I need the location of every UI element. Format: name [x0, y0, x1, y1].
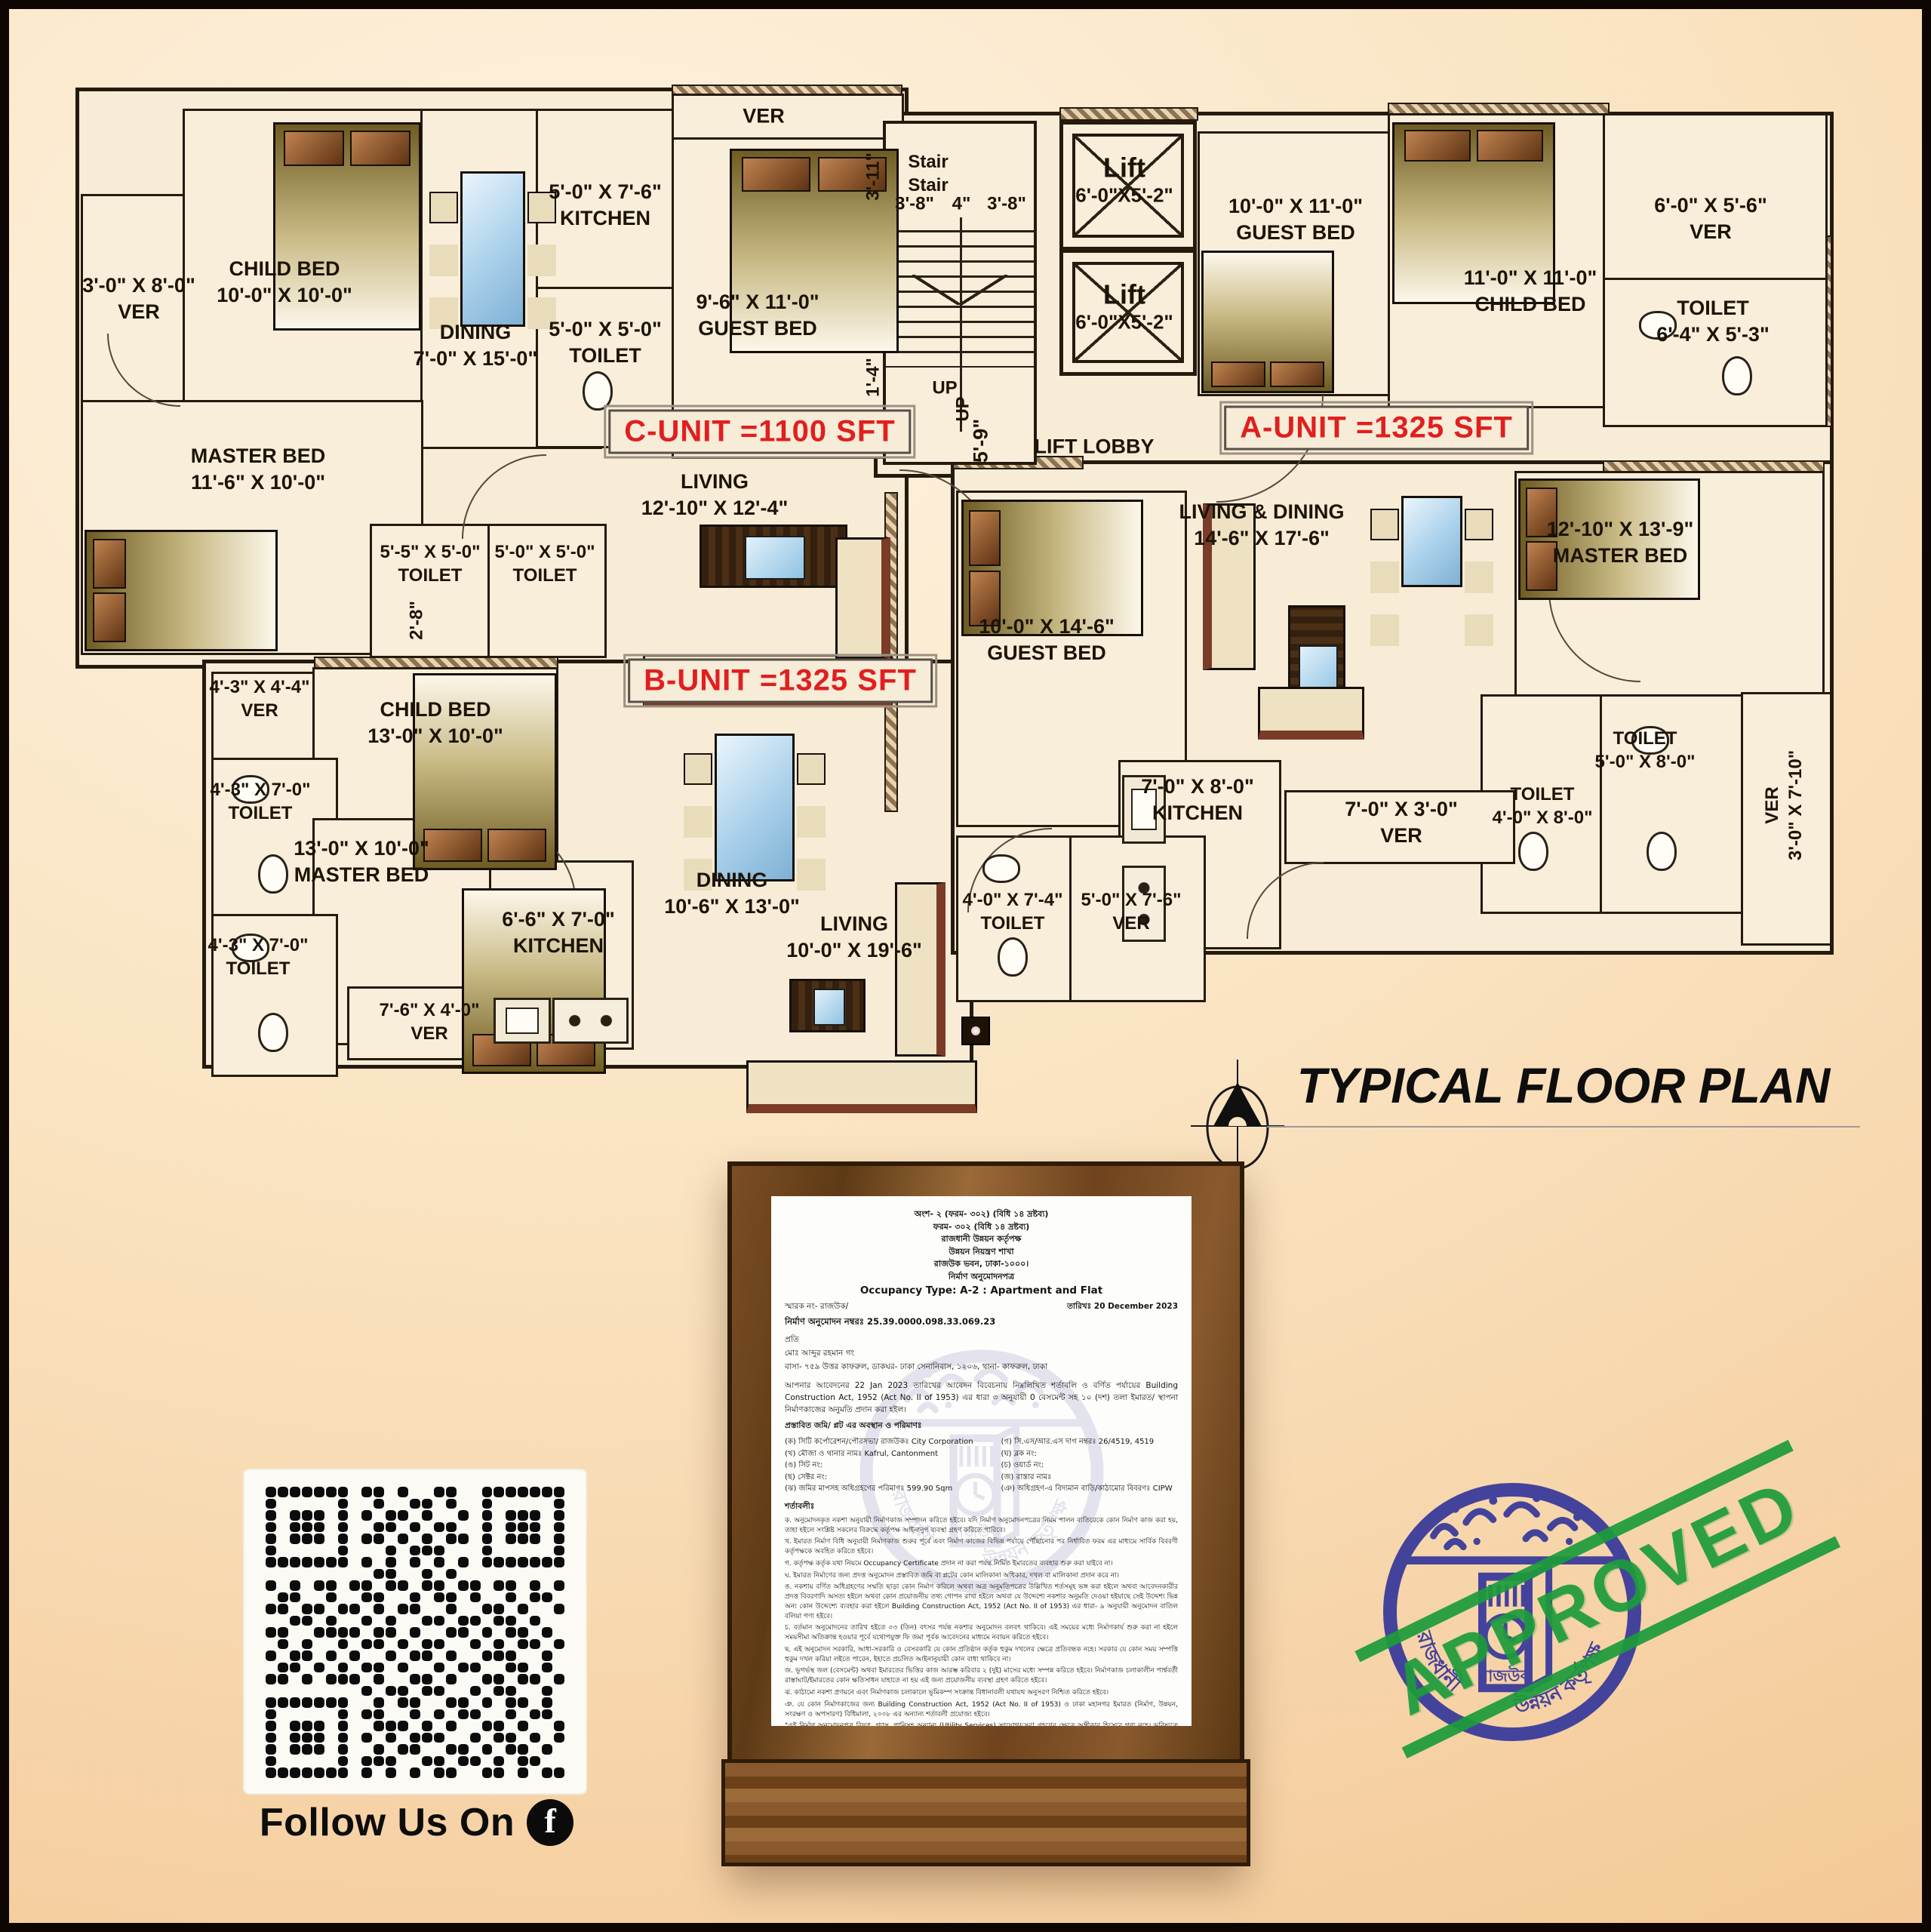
- qr-module: [302, 1674, 312, 1684]
- qr-module: [278, 1767, 288, 1778]
- qr-module: [326, 1756, 337, 1767]
- qr-module: [422, 1663, 432, 1673]
- qr-module: [361, 1580, 372, 1591]
- qr-module: [422, 1546, 432, 1556]
- cert-header-line: রাজউক ভবন, ঢাকা-১০০০।: [785, 1258, 1178, 1271]
- qr-module: [458, 1534, 469, 1544]
- qr-module: [554, 1592, 564, 1603]
- qr-module: [326, 1522, 337, 1533]
- qr-module: [326, 1546, 337, 1556]
- qr-module: [482, 1639, 493, 1650]
- qr-module: [518, 1639, 528, 1650]
- qr-module: [386, 1546, 396, 1556]
- qr-module: [349, 1709, 360, 1720]
- cert-addressee: বাসা- ৭৫৯ উত্তর কাফরুল, ডাকঘর- ঢাকা সেনা…: [785, 1361, 1178, 1374]
- qr-module: [374, 1487, 384, 1497]
- qr-module: [518, 1674, 528, 1684]
- qr-module: [446, 1580, 457, 1591]
- qr-module: [494, 1592, 504, 1603]
- qr-module: [290, 1721, 300, 1731]
- qr-module: [374, 1686, 384, 1697]
- qr-module: [422, 1686, 432, 1697]
- room-label: CHILD BED10'-0" X 10'-0": [217, 256, 352, 309]
- qr-module: [530, 1639, 540, 1650]
- room-label: 4'-3" X 4'-4"VER: [210, 675, 310, 722]
- qr-module: [458, 1651, 469, 1661]
- qr-module: [314, 1522, 324, 1533]
- qr-module: [470, 1639, 481, 1650]
- cert-header-line: উন্নয়ন নিয়ন্ত্রণ শাখা: [785, 1246, 1178, 1259]
- qr-module: [338, 1674, 349, 1684]
- qr-module: [290, 1616, 300, 1626]
- qr-module: [458, 1733, 469, 1743]
- qr-module: [386, 1534, 396, 1544]
- qr-module: [302, 1522, 312, 1533]
- qr-module: [494, 1604, 504, 1614]
- qr-module: [530, 1767, 540, 1778]
- qr-module: [374, 1663, 384, 1673]
- qr-module: [410, 1639, 420, 1650]
- dim-label: 3'-8": [895, 192, 934, 215]
- qr-module: [482, 1663, 493, 1673]
- toilet-wc-icon: [258, 1013, 288, 1052]
- qr-module: [554, 1709, 564, 1720]
- qr-module: [494, 1767, 504, 1778]
- room-label: 9'-6" X 11'-0"GUEST BED: [696, 289, 819, 342]
- qr-module: [422, 1709, 432, 1720]
- qr-module: [278, 1580, 288, 1591]
- qr-module: [290, 1627, 300, 1638]
- qr-module: [278, 1756, 288, 1767]
- qr-module: [302, 1569, 312, 1580]
- qr-module: [434, 1709, 444, 1720]
- qr-module: [458, 1721, 469, 1731]
- stair-label: StairStair: [908, 150, 948, 197]
- qr-module: [482, 1580, 493, 1591]
- cert-header-line: রাজধানী উন্নয়ন কর্তৃপক্ষ: [785, 1233, 1178, 1246]
- qr-module: [518, 1534, 528, 1544]
- qr-module: [470, 1616, 481, 1626]
- qr-module: [361, 1686, 372, 1697]
- qr-module: [494, 1557, 504, 1567]
- qr-module: [398, 1569, 408, 1580]
- qr-module: [338, 1651, 349, 1661]
- qr-module: [446, 1651, 457, 1661]
- cert-plot-grid: (ক) সিটি কর্পোরেশন/পৌরসভা/ রাজউকঃ City C…: [785, 1436, 1178, 1495]
- qr-module: [458, 1639, 469, 1650]
- qr-module: [302, 1767, 312, 1778]
- qr-module: [278, 1627, 288, 1638]
- qr-module: [542, 1534, 552, 1544]
- qr-module: [554, 1604, 564, 1614]
- qr-module: [349, 1756, 360, 1767]
- qr-module: [446, 1592, 457, 1603]
- qr-module: [314, 1557, 324, 1567]
- qr-module: [446, 1534, 457, 1544]
- qr-module: [290, 1557, 300, 1567]
- qr-module: [290, 1756, 300, 1767]
- qr-module: [338, 1616, 349, 1626]
- plot-cell: (চ) ওয়ার্ড নং:: [1001, 1460, 1178, 1472]
- qr-module: [482, 1651, 493, 1661]
- qr-module: [518, 1557, 528, 1567]
- qr-module: [458, 1709, 469, 1720]
- room-label: 4'-0" X 7'-4"TOILET: [963, 888, 1063, 935]
- qr-module: [398, 1639, 408, 1650]
- qr-module: [506, 1616, 516, 1626]
- qr-module: [326, 1651, 337, 1661]
- room-label: TOILET4'-0" X 8'-0": [1493, 783, 1593, 829]
- qr-module: [494, 1721, 504, 1731]
- qr-module: [554, 1663, 564, 1673]
- qr-module: [266, 1686, 276, 1697]
- qr-module: [434, 1510, 444, 1521]
- cert-approval-number: নির্মাণ অনুমোদন নম্বরঃ 25.39.0000.098.33…: [785, 1315, 1178, 1330]
- qr-module: [374, 1733, 384, 1743]
- qr-module: [374, 1709, 384, 1720]
- qr-module: [302, 1733, 312, 1743]
- follow-us-label: Follow Us On: [260, 1800, 515, 1845]
- room-label: MASTER BED11'-6" X 10'-0": [191, 443, 326, 496]
- qr-module: [434, 1721, 444, 1731]
- room-label: 7'-0" X 8'-0"KITCHEN: [1141, 774, 1254, 826]
- qr-module: [482, 1627, 493, 1638]
- floor-plan: 3'-0" X 8'-0"VER CHILD BED10'-0" X 10'-0…: [9, 9, 1931, 1156]
- qr-module: [302, 1604, 312, 1614]
- cert-condition: ঙ. নকশায় বর্ণিত অধিগ্রহণের সম্মতি ছাড়া…: [785, 1583, 1178, 1621]
- qr-module: [446, 1744, 457, 1755]
- qr-module: [386, 1522, 396, 1533]
- qr-module: [530, 1697, 540, 1708]
- unit-label-a: A-UNIT =1325 SFT: [1224, 406, 1529, 451]
- dim-label: 2'-8": [404, 601, 428, 640]
- qr-module: [506, 1592, 516, 1603]
- qr-module: [278, 1569, 288, 1580]
- qr-module: [518, 1569, 528, 1580]
- cert-conditions-heading: শর্তাবলীঃ: [785, 1501, 1178, 1514]
- qr-module: [266, 1522, 276, 1533]
- qr-module: [314, 1651, 324, 1661]
- qr-module: [458, 1767, 469, 1778]
- qr-module: [374, 1697, 384, 1708]
- qr-module: [542, 1733, 552, 1743]
- qr-module: [374, 1627, 384, 1638]
- bed-icon: [85, 530, 278, 651]
- qr-module: [386, 1510, 396, 1521]
- qr-module: [338, 1487, 349, 1497]
- qr-module: [302, 1592, 312, 1603]
- qr-module: [398, 1721, 408, 1731]
- qr-module: [266, 1709, 276, 1720]
- cert-header-line: ফরম- ৩০২ (বিধি ১৪ দ্রষ্টব্য): [785, 1221, 1178, 1234]
- qr-module: [506, 1721, 516, 1731]
- qr-module: [554, 1756, 564, 1767]
- qr-module: [314, 1604, 324, 1614]
- qr-module: [302, 1510, 312, 1521]
- qr-module: [374, 1651, 384, 1661]
- qr-module: [338, 1534, 349, 1544]
- qr-module: [542, 1546, 552, 1556]
- qr-module: [361, 1744, 372, 1755]
- plot-cell: (জ) রাস্তার নামঃ: [1001, 1472, 1178, 1484]
- qr-module: [494, 1686, 504, 1697]
- sofa-icon: [895, 882, 946, 1057]
- qr-module: [434, 1651, 444, 1661]
- qr-module: [422, 1510, 432, 1521]
- qr-module: [398, 1546, 408, 1556]
- qr-module: [422, 1697, 432, 1708]
- room-label: LIVING & DINING14'-6" X 17'-6": [1179, 499, 1344, 552]
- qr-module: [374, 1592, 384, 1603]
- qr-module: [266, 1639, 276, 1650]
- room-label: LIVING10'-0" X 19'-6": [786, 911, 922, 964]
- qr-module: [314, 1674, 324, 1684]
- qr-module: [361, 1534, 372, 1544]
- qr-module: [338, 1767, 349, 1778]
- qr-module: [349, 1767, 360, 1778]
- qr-module: [326, 1534, 337, 1544]
- qr-module: [458, 1499, 469, 1509]
- qr-module: [314, 1487, 324, 1497]
- qr-module: [361, 1639, 372, 1650]
- qr-module: [542, 1709, 552, 1720]
- dim-label: 3'-11": [861, 152, 884, 201]
- qr-module: [374, 1674, 384, 1684]
- qr-module: [530, 1721, 540, 1731]
- qr-module: [494, 1733, 504, 1743]
- qr-module: [410, 1546, 420, 1556]
- qr-module: [302, 1580, 312, 1591]
- qr-module: [446, 1569, 457, 1580]
- qr-module: [446, 1616, 457, 1626]
- qr-module: [482, 1756, 493, 1767]
- qr-module: [374, 1557, 384, 1567]
- toilet-wc-icon: [998, 937, 1028, 977]
- qr-module: [542, 1592, 552, 1603]
- qr-module: [542, 1627, 552, 1638]
- qr-module: [542, 1721, 552, 1731]
- room-label: 5'-0" X 7'-6"VER: [1081, 888, 1182, 935]
- qr-module: [398, 1697, 408, 1708]
- qr-module: [314, 1510, 324, 1521]
- qr-module: [338, 1499, 349, 1509]
- qr-module: [530, 1546, 540, 1556]
- qr-module: [398, 1744, 408, 1755]
- qr-module: [470, 1663, 481, 1673]
- dining-table-icon: [460, 171, 525, 327]
- qr-module: [290, 1569, 300, 1580]
- qr-module: [290, 1709, 300, 1720]
- room-label: 4'-3" X 7'-0"TOILET: [211, 778, 311, 825]
- qr-module: [290, 1663, 300, 1673]
- qr-module: [374, 1499, 384, 1509]
- bed-icon: [1201, 251, 1334, 393]
- qr-module: [518, 1627, 528, 1638]
- qr-module: [506, 1522, 516, 1533]
- qr-module: [338, 1546, 349, 1556]
- qr-module: [506, 1686, 516, 1697]
- qr-module: [554, 1580, 564, 1591]
- qr-code: [266, 1487, 564, 1778]
- qr-module: [326, 1616, 337, 1626]
- qr-module: [518, 1663, 528, 1673]
- qr-module: [494, 1663, 504, 1673]
- qr-module: [494, 1522, 504, 1533]
- qr-module: [506, 1499, 516, 1509]
- cert-memo-no: স্মারক নং- রাজউক/: [785, 1301, 848, 1314]
- cert-condition: ছ. এই অনুমোদন সরকারি, আধা-সরকারি ও বেসরক…: [785, 1645, 1178, 1665]
- qr-module: [506, 1767, 516, 1778]
- qr-module: [386, 1663, 396, 1673]
- qr-module: [410, 1744, 420, 1755]
- qr-module: [470, 1510, 481, 1521]
- qr-module: [494, 1697, 504, 1708]
- qr-module: [398, 1510, 408, 1521]
- qr-module: [278, 1674, 288, 1684]
- qr-module: [266, 1592, 276, 1603]
- qr-module: [422, 1534, 432, 1544]
- qr-module: [410, 1651, 420, 1661]
- qr-module: [494, 1510, 504, 1521]
- qr-module: [266, 1499, 276, 1509]
- room-label: LIVING12'-10" X 12'-4": [641, 469, 789, 521]
- qr-module: [398, 1616, 408, 1626]
- lift-label: Lift6'-0"X5'-2": [1075, 279, 1173, 334]
- qr-module: [470, 1499, 481, 1509]
- qr-module: [518, 1721, 528, 1731]
- qr-module: [470, 1767, 481, 1778]
- qr-module: [506, 1487, 516, 1497]
- toilet-wc-icon: [1518, 832, 1548, 871]
- qr-module: [326, 1674, 337, 1684]
- qr-module: [410, 1534, 420, 1544]
- qr-module: [410, 1604, 420, 1614]
- qr-module: [386, 1487, 396, 1497]
- qr-module: [434, 1569, 444, 1580]
- qr-module: [302, 1651, 312, 1661]
- qr-module: [278, 1546, 288, 1556]
- qr-module: [470, 1733, 481, 1743]
- qr-module: [338, 1709, 349, 1720]
- qr-module: [349, 1534, 360, 1544]
- qr-module: [470, 1721, 481, 1731]
- qr-module: [290, 1744, 300, 1755]
- toilet-wc-icon: [583, 371, 613, 411]
- qr-module: [361, 1522, 372, 1533]
- qr-module: [530, 1756, 540, 1767]
- qr-module: [338, 1744, 349, 1755]
- qr-module: [530, 1686, 540, 1697]
- qr-module: [542, 1510, 552, 1521]
- qr-module: [434, 1499, 444, 1509]
- qr-module: [278, 1604, 288, 1614]
- qr-module: [518, 1616, 528, 1626]
- qr-module: [554, 1639, 564, 1650]
- qr-module: [554, 1557, 564, 1567]
- qr-module: [542, 1686, 552, 1697]
- qr-module: [554, 1487, 564, 1497]
- qr-module: [398, 1557, 408, 1567]
- qr-module: [302, 1744, 312, 1755]
- qr-module: [446, 1709, 457, 1720]
- qr-module: [494, 1580, 504, 1591]
- qr-module: [554, 1510, 564, 1521]
- qr-module: [314, 1733, 324, 1743]
- qr-module: [302, 1534, 312, 1544]
- qr-module: [410, 1522, 420, 1533]
- qr-module: [349, 1686, 360, 1697]
- room-label: DINING10'-6" X 13'-0": [664, 867, 800, 920]
- qr-module: [266, 1569, 276, 1580]
- qr-module: [482, 1510, 493, 1521]
- qr-module: [349, 1627, 360, 1638]
- qr-module: [314, 1767, 324, 1778]
- qr-module: [554, 1499, 564, 1509]
- qr-module: [410, 1592, 420, 1603]
- qr-module: [398, 1522, 408, 1533]
- qr-module: [266, 1674, 276, 1684]
- wall-hatch: [1059, 107, 1198, 121]
- qr-module: [518, 1580, 528, 1591]
- qr-module: [422, 1557, 432, 1567]
- qr-module: [482, 1697, 493, 1708]
- qr-module: [434, 1546, 444, 1556]
- qr-module: [494, 1487, 504, 1497]
- qr-module: [530, 1733, 540, 1743]
- qr-module: [446, 1522, 457, 1533]
- qr-module: [398, 1663, 408, 1673]
- qr-module: [446, 1674, 457, 1684]
- room-label: VER3'-0" X 7'-10": [1760, 750, 1807, 860]
- qr-module: [361, 1616, 372, 1626]
- qr-module: [446, 1627, 457, 1638]
- qr-module: [410, 1733, 420, 1743]
- qr-module: [338, 1721, 349, 1731]
- qr-module: [398, 1651, 408, 1661]
- qr-module: [530, 1604, 540, 1614]
- qr-module: [386, 1604, 396, 1614]
- qr-module: [326, 1709, 337, 1720]
- qr-module: [374, 1546, 384, 1556]
- qr-module: [470, 1534, 481, 1544]
- qr-module: [386, 1616, 396, 1626]
- frame-ledge: [721, 1759, 1250, 1866]
- qr-module: [349, 1499, 360, 1509]
- qr-module: [422, 1487, 432, 1497]
- qr-module: [422, 1651, 432, 1661]
- qr-module: [530, 1674, 540, 1684]
- qr-module: [278, 1592, 288, 1603]
- qr-module: [506, 1569, 516, 1580]
- floor-plan-poster: { "title": { "text": "TYPICAL FLOOR PLAN…: [0, 0, 1931, 1932]
- qr-module: [470, 1487, 481, 1497]
- qr-module: [326, 1557, 337, 1567]
- qr-module: [266, 1557, 276, 1567]
- qr-module: [506, 1663, 516, 1673]
- room-label: 3'-0" X 8'-0"VER: [82, 272, 195, 325]
- qr-module: [482, 1522, 493, 1533]
- qr-module: [361, 1697, 372, 1708]
- qr-module: [494, 1534, 504, 1544]
- qr-module: [314, 1627, 324, 1638]
- qr-module: [398, 1534, 408, 1544]
- qr-module: [434, 1487, 444, 1497]
- qr-module: [398, 1580, 408, 1591]
- dining-table-icon: [1401, 496, 1462, 587]
- qr-module: [506, 1557, 516, 1567]
- qr-module: [349, 1639, 360, 1650]
- qr-module: [530, 1663, 540, 1673]
